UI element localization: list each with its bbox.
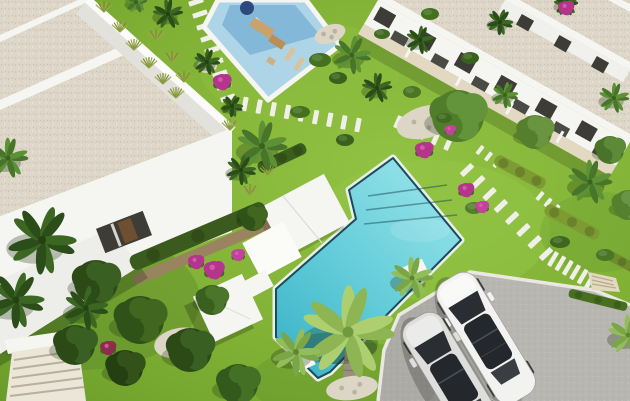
bush: [374, 29, 390, 39]
aerial-render: [0, 0, 630, 401]
bush: [461, 52, 479, 64]
climbing-dome: [240, 1, 254, 15]
bush: [436, 113, 452, 123]
bush: [336, 134, 354, 146]
residential-complex-rendering: [0, 0, 630, 401]
bush: [550, 236, 570, 248]
water-highlight: [390, 218, 450, 242]
bush: [403, 86, 421, 98]
bush: [309, 53, 331, 67]
bush: [421, 8, 439, 20]
bush: [596, 249, 614, 261]
bush: [329, 72, 347, 84]
bush: [290, 106, 310, 118]
